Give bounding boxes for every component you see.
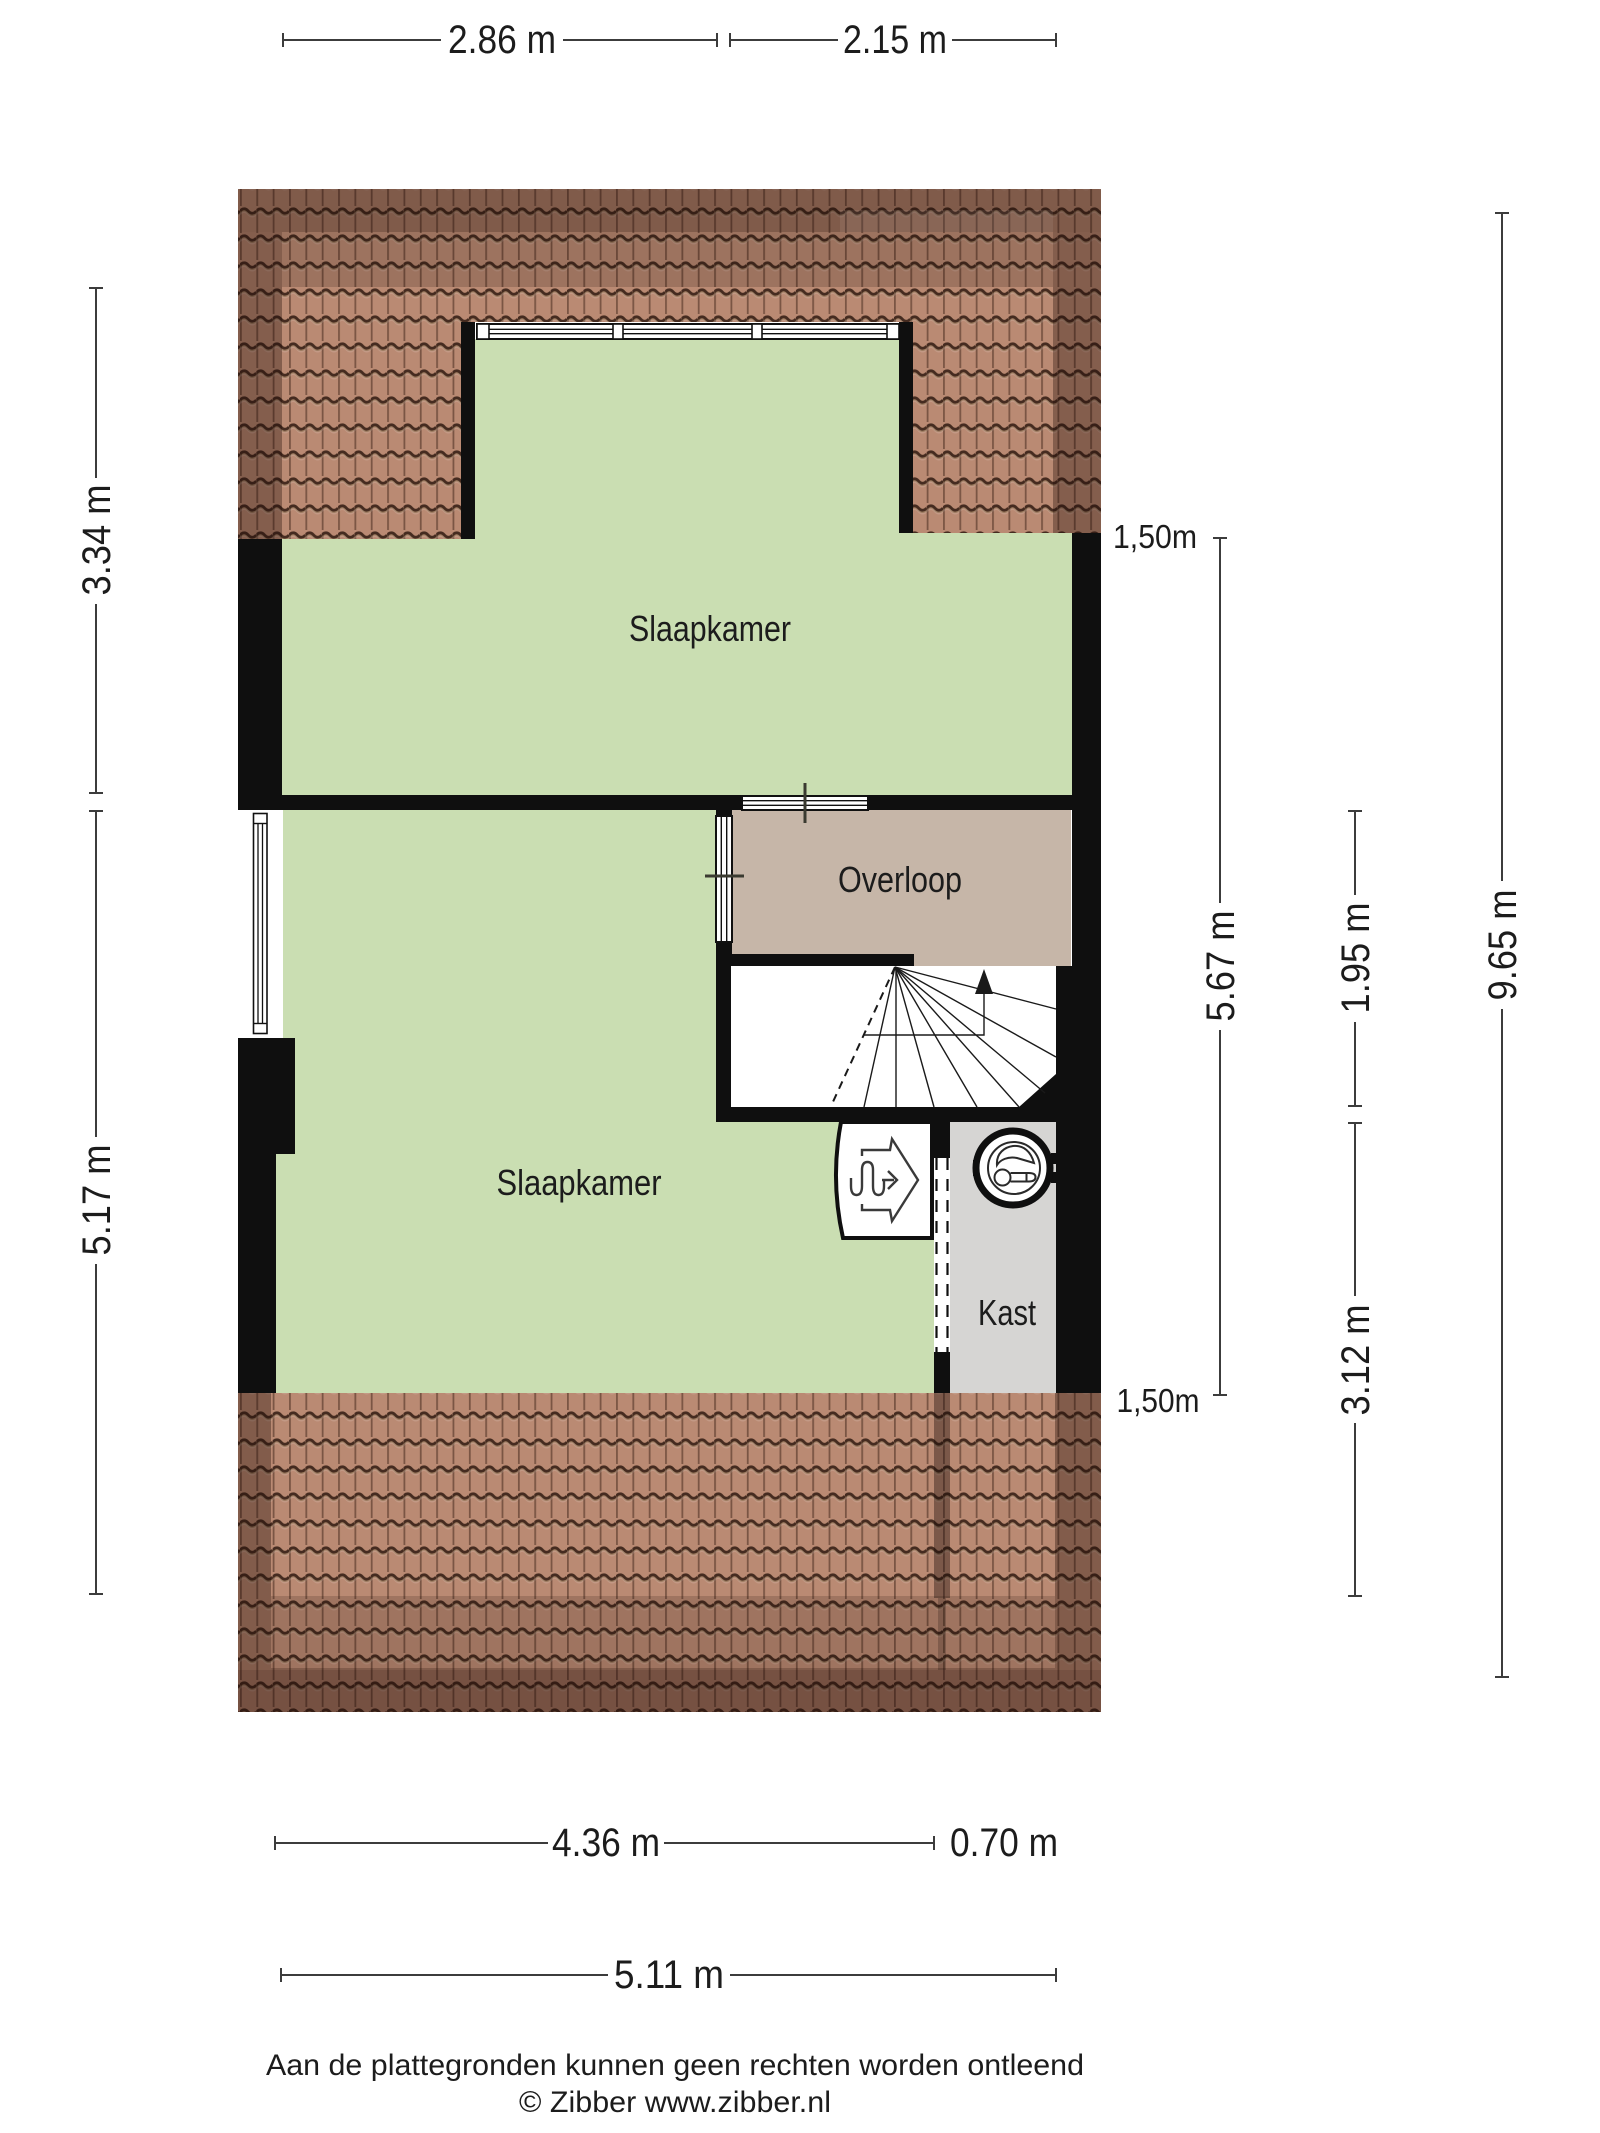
svg-text:9.65 m: 9.65 m — [1481, 890, 1525, 1001]
svg-text:4.36 m: 4.36 m — [552, 1821, 660, 1865]
svg-text:Slaapkamer: Slaapkamer — [629, 608, 791, 649]
svg-text:© Zibber www.zibber.nl: © Zibber www.zibber.nl — [519, 2086, 831, 2119]
svg-text:Kast: Kast — [978, 1292, 1036, 1333]
svg-text:5.11 m: 5.11 m — [614, 1953, 724, 1997]
svg-text:5.17 m: 5.17 m — [75, 1145, 119, 1256]
svg-text:0.70 m: 0.70 m — [950, 1821, 1058, 1865]
svg-text:Overloop: Overloop — [838, 859, 962, 900]
svg-text:1.95 m: 1.95 m — [1334, 903, 1378, 1014]
svg-text:5.67 m: 5.67 m — [1199, 911, 1243, 1022]
svg-text:3.34 m: 3.34 m — [75, 485, 119, 596]
svg-text:Slaapkamer: Slaapkamer — [497, 1162, 662, 1203]
svg-text:1,50m: 1,50m — [1113, 518, 1197, 555]
svg-text:2.86 m: 2.86 m — [448, 18, 556, 62]
svg-text:Aan de plattegronden kunnen ge: Aan de plattegronden kunnen geen rechten… — [266, 2049, 1084, 2082]
svg-text:3.12 m: 3.12 m — [1334, 1305, 1378, 1416]
svg-text:1,50m: 1,50m — [1117, 1382, 1200, 1419]
svg-text:2.15 m: 2.15 m — [843, 18, 947, 62]
